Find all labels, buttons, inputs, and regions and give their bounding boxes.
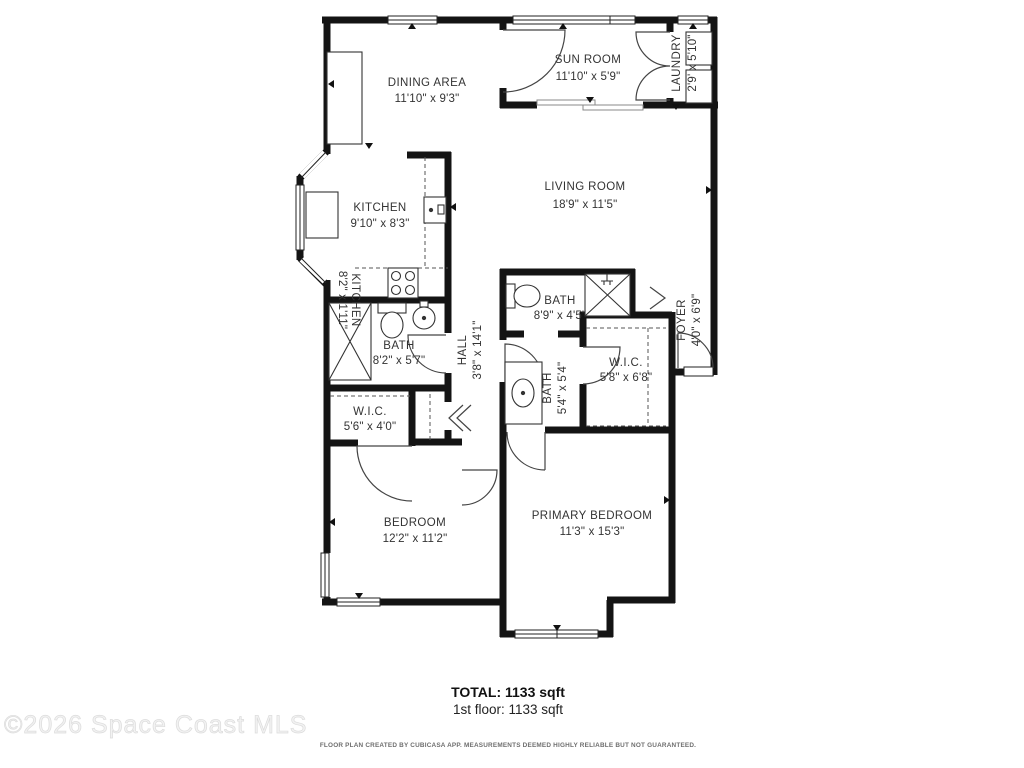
room-label-primary: PRIMARY BEDROOM 11'3" x 15'3" — [532, 510, 653, 538]
room-name-living: LIVING ROOM — [544, 181, 625, 193]
room-dims-bedroom: 12'2" x 11'2" — [383, 533, 448, 545]
stove-burner — [392, 272, 401, 281]
room-name-kitchen-strip: KITCHEN — [349, 273, 361, 326]
room-dims-dining: 11'10" x 9'3" — [395, 93, 460, 105]
kitchen-sink-handle — [438, 205, 444, 214]
toilet-bath2-bowl — [514, 285, 540, 307]
room-name-primary: PRIMARY BEDROOM — [532, 510, 653, 522]
sliding-door-panel-left — [537, 100, 595, 105]
refrigerator — [306, 192, 338, 238]
room-label-wic2: W.I.C. 5'8" x 6'8" — [600, 357, 652, 384]
room-label-wic1: W.I.C. 5'6" x 4'0" — [344, 406, 396, 433]
room-dims-kitchen: 9'10" x 8'3" — [350, 218, 409, 230]
room-name-bath2: BATH — [544, 295, 575, 307]
room-label-bath2: BATH 8'9" x 4'5" — [534, 295, 586, 322]
room-label-foyer: FOYER 4'0" x 6'9" — [676, 294, 703, 346]
toilet-bath1-bowl — [381, 312, 403, 338]
room-label-dining: DINING AREA 11'10" x 9'3" — [388, 77, 467, 105]
window-bay-diagonal-upper-line — [301, 152, 326, 178]
window-bay-diagonal-lower-line — [301, 258, 326, 283]
room-dims-wic2: 5'8" x 6'8" — [600, 372, 652, 384]
room-label-bedroom: BEDROOM 12'2" x 11'2" — [383, 517, 448, 545]
room-dims-wic1: 5'6" x 4'0" — [344, 421, 396, 433]
room-dims-bath3: 5'4" x 5'4" — [557, 362, 569, 414]
room-dims-foyer: 4'0" x 6'9" — [691, 294, 703, 346]
floor-plan-drawing: DINING AREA 11'10" x 9'3" SUN ROOM 11'10… — [0, 0, 1024, 768]
room-dims-living: 18'9" x 11'5" — [553, 199, 618, 211]
room-name-foyer: FOYER — [676, 299, 688, 341]
room-name-bedroom: BEDROOM — [384, 517, 446, 529]
disclaimer-text: FLOOR PLAN CREATED BY CUBICASA APP. MEAS… — [320, 742, 696, 749]
sliding-door-panel-right — [583, 105, 643, 110]
room-dims-laundry: 2'9' x 5'10" — [687, 34, 699, 91]
room-name-wic2: W.I.C. — [609, 357, 643, 369]
sink-bath1-drain — [422, 316, 425, 319]
sink-bath1-tap — [420, 301, 428, 307]
summary: TOTAL: 1133 sqft 1st floor: 1133 sqft FL… — [320, 684, 696, 749]
floor-area-text: 1st floor: 1133 sqft — [453, 702, 563, 717]
room-label-bath3: BATH 5'4" x 5'4" — [542, 362, 569, 414]
dining-cabinet — [327, 52, 362, 144]
room-dims-bath1: 8'2" x 5'7" — [373, 355, 425, 367]
room-dims-primary: 11'3" x 15'3" — [560, 526, 625, 538]
room-dims-hall: 3'8" x 14'1" — [472, 320, 484, 379]
room-dims-kitchen-strip: 8'2" x 1'11" — [336, 271, 348, 329]
stove-burner — [406, 286, 415, 295]
room-name-dining: DINING AREA — [388, 77, 467, 89]
kitchen-sink-drain — [429, 208, 432, 211]
room-name-hall: HALL — [457, 335, 469, 366]
room-dims-sunroom: 11'10" x 5'9" — [556, 71, 621, 83]
room-label-hall: HALL 3'8" x 14'1" — [457, 320, 484, 379]
room-label-bath1: BATH 8'2" x 5'7" — [373, 340, 425, 367]
room-name-bath1: BATH — [383, 340, 414, 352]
room-label-kitchen-strip: KITCHEN 8'2" x 1'11" — [336, 271, 361, 329]
room-label-living: LIVING ROOM 18'9" x 11'5" — [544, 181, 625, 211]
stove-burner — [406, 272, 415, 281]
room-name-bath3: BATH — [542, 372, 554, 403]
front-door-threshold — [684, 367, 713, 376]
room-name-laundry: LAUNDRY — [671, 34, 683, 92]
room-label-sunroom: SUN ROOM 11'10" x 5'9" — [555, 54, 621, 83]
room-label-kitchen: KITCHEN 9'10" x 8'3" — [350, 202, 409, 230]
room-name-sunroom: SUN ROOM — [555, 54, 621, 66]
room-dims-bath2: 8'9" x 4'5" — [534, 310, 586, 322]
sink-bath3-drain — [521, 391, 524, 394]
room-name-kitchen: KITCHEN — [353, 202, 406, 214]
room-name-wic1: W.I.C. — [353, 406, 387, 418]
total-area-text: TOTAL: 1133 sqft — [451, 684, 565, 700]
room-label-laundry: LAUNDRY 2'9' x 5'10" — [671, 34, 699, 92]
mls-watermark: ©2026 Space Coast MLS — [4, 711, 307, 739]
floor-plan-page: DINING AREA 11'10" x 9'3" SUN ROOM 11'10… — [0, 0, 1024, 768]
stove-burner — [392, 286, 401, 295]
